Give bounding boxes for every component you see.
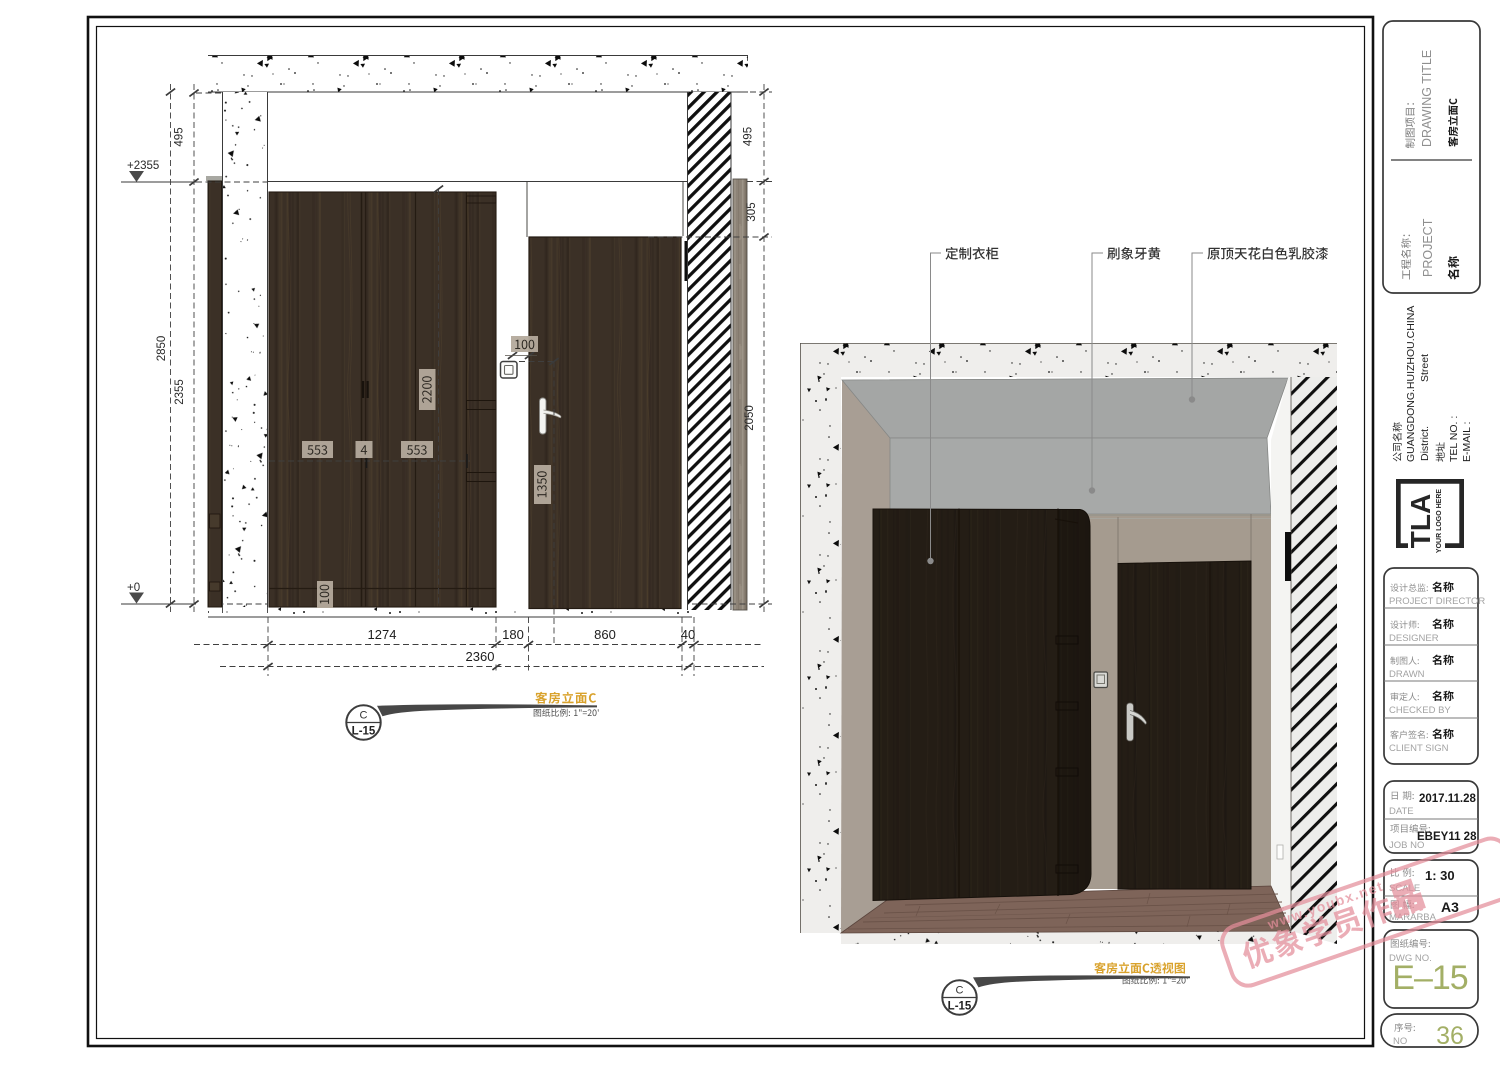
svg-text:2360: 2360 <box>466 649 495 664</box>
svg-text:C: C <box>956 985 964 997</box>
svg-text:JOB NO: JOB NO <box>1389 840 1424 851</box>
svg-text:E–15: E–15 <box>1392 959 1467 997</box>
svg-text:District.: District. <box>1419 426 1431 461</box>
svg-text:CLIENT SIGN: CLIENT SIGN <box>1389 743 1449 754</box>
svg-text:TEL NO. :: TEL NO. : <box>1448 416 1460 462</box>
svg-text:DATE: DATE <box>1389 806 1414 817</box>
svg-text:+0: +0 <box>127 582 140 594</box>
svg-text:E-MAIL :: E-MAIL : <box>1461 422 1473 462</box>
svg-text:C: C <box>360 710 368 722</box>
svg-text:495: 495 <box>743 127 755 146</box>
svg-text:Street: Street <box>1419 354 1431 382</box>
svg-text:TLA: TLA <box>1405 494 1436 548</box>
svg-text:CHECKED BY: CHECKED BY <box>1389 705 1451 716</box>
svg-text:DRAWING TITLE: DRAWING TITLE <box>1420 50 1434 147</box>
svg-text:YOUR LOGO HERE: YOUR LOGO HERE <box>1436 489 1443 554</box>
svg-text:+2355: +2355 <box>127 160 159 172</box>
svg-text:2050: 2050 <box>744 405 756 431</box>
svg-text:NO: NO <box>1393 1036 1407 1047</box>
svg-text:L-15: L-15 <box>352 726 376 738</box>
svg-text:1274: 1274 <box>368 627 397 642</box>
svg-text:180: 180 <box>502 627 524 642</box>
svg-text:DRAWN: DRAWN <box>1389 669 1425 680</box>
svg-text:36: 36 <box>1436 1022 1464 1050</box>
svg-text:1: 30: 1: 30 <box>1425 868 1455 883</box>
svg-text:2355: 2355 <box>174 379 186 405</box>
svg-text:GUANGDONG.HUIZHOU.CHINA: GUANGDONG.HUIZHOU.CHINA <box>1405 306 1417 462</box>
svg-text:PROJECT DIRECTOR: PROJECT DIRECTOR <box>1389 596 1485 607</box>
svg-text:2850: 2850 <box>156 336 168 362</box>
svg-text:40: 40 <box>681 627 695 642</box>
svg-text:DESIGNER: DESIGNER <box>1389 633 1439 644</box>
svg-text:860: 860 <box>594 627 616 642</box>
svg-text:L-15: L-15 <box>948 1001 972 1013</box>
svg-text:305: 305 <box>746 202 758 221</box>
svg-text:495: 495 <box>174 127 186 146</box>
svg-text:2017.11.28: 2017.11.28 <box>1419 793 1477 805</box>
svg-text:PROJECT: PROJECT <box>1421 218 1435 277</box>
svg-text:A3: A3 <box>1441 899 1459 915</box>
svg-text:EBEY11 28: EBEY11 28 <box>1417 831 1477 843</box>
